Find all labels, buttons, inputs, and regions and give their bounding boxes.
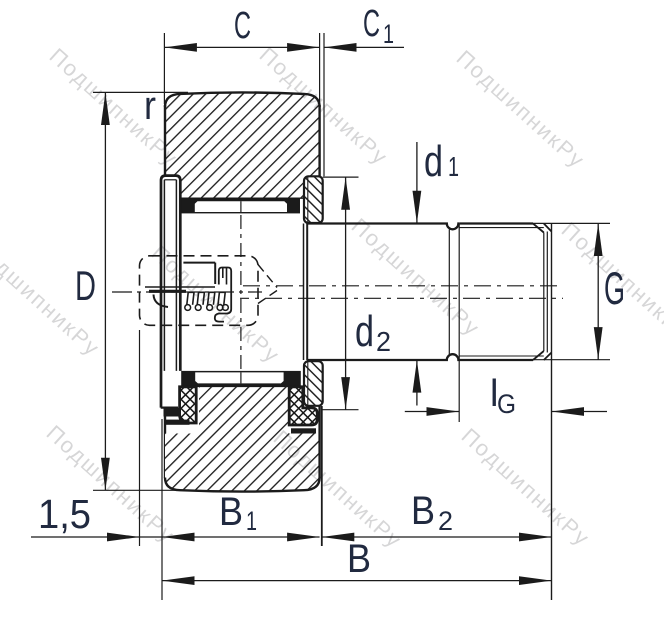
svg-text:d: d (424, 137, 443, 186)
svg-text:G: G (497, 389, 516, 419)
svg-text:1: 1 (246, 506, 257, 536)
svg-text:2: 2 (438, 506, 453, 536)
svg-text:d: d (355, 307, 374, 356)
svg-text:B: B (347, 537, 371, 581)
svg-text:C: C (363, 3, 380, 45)
svg-text:2: 2 (376, 326, 391, 357)
svg-text:B: B (411, 489, 435, 533)
svg-text:1: 1 (448, 151, 459, 182)
svg-text:G: G (604, 263, 625, 314)
svg-text:D: D (75, 262, 96, 309)
svg-text:B: B (219, 490, 243, 534)
svg-text:C: C (234, 5, 251, 47)
svg-text:1: 1 (383, 19, 394, 49)
svg-text:1,5: 1,5 (38, 491, 91, 537)
svg-text:r: r (144, 84, 156, 128)
